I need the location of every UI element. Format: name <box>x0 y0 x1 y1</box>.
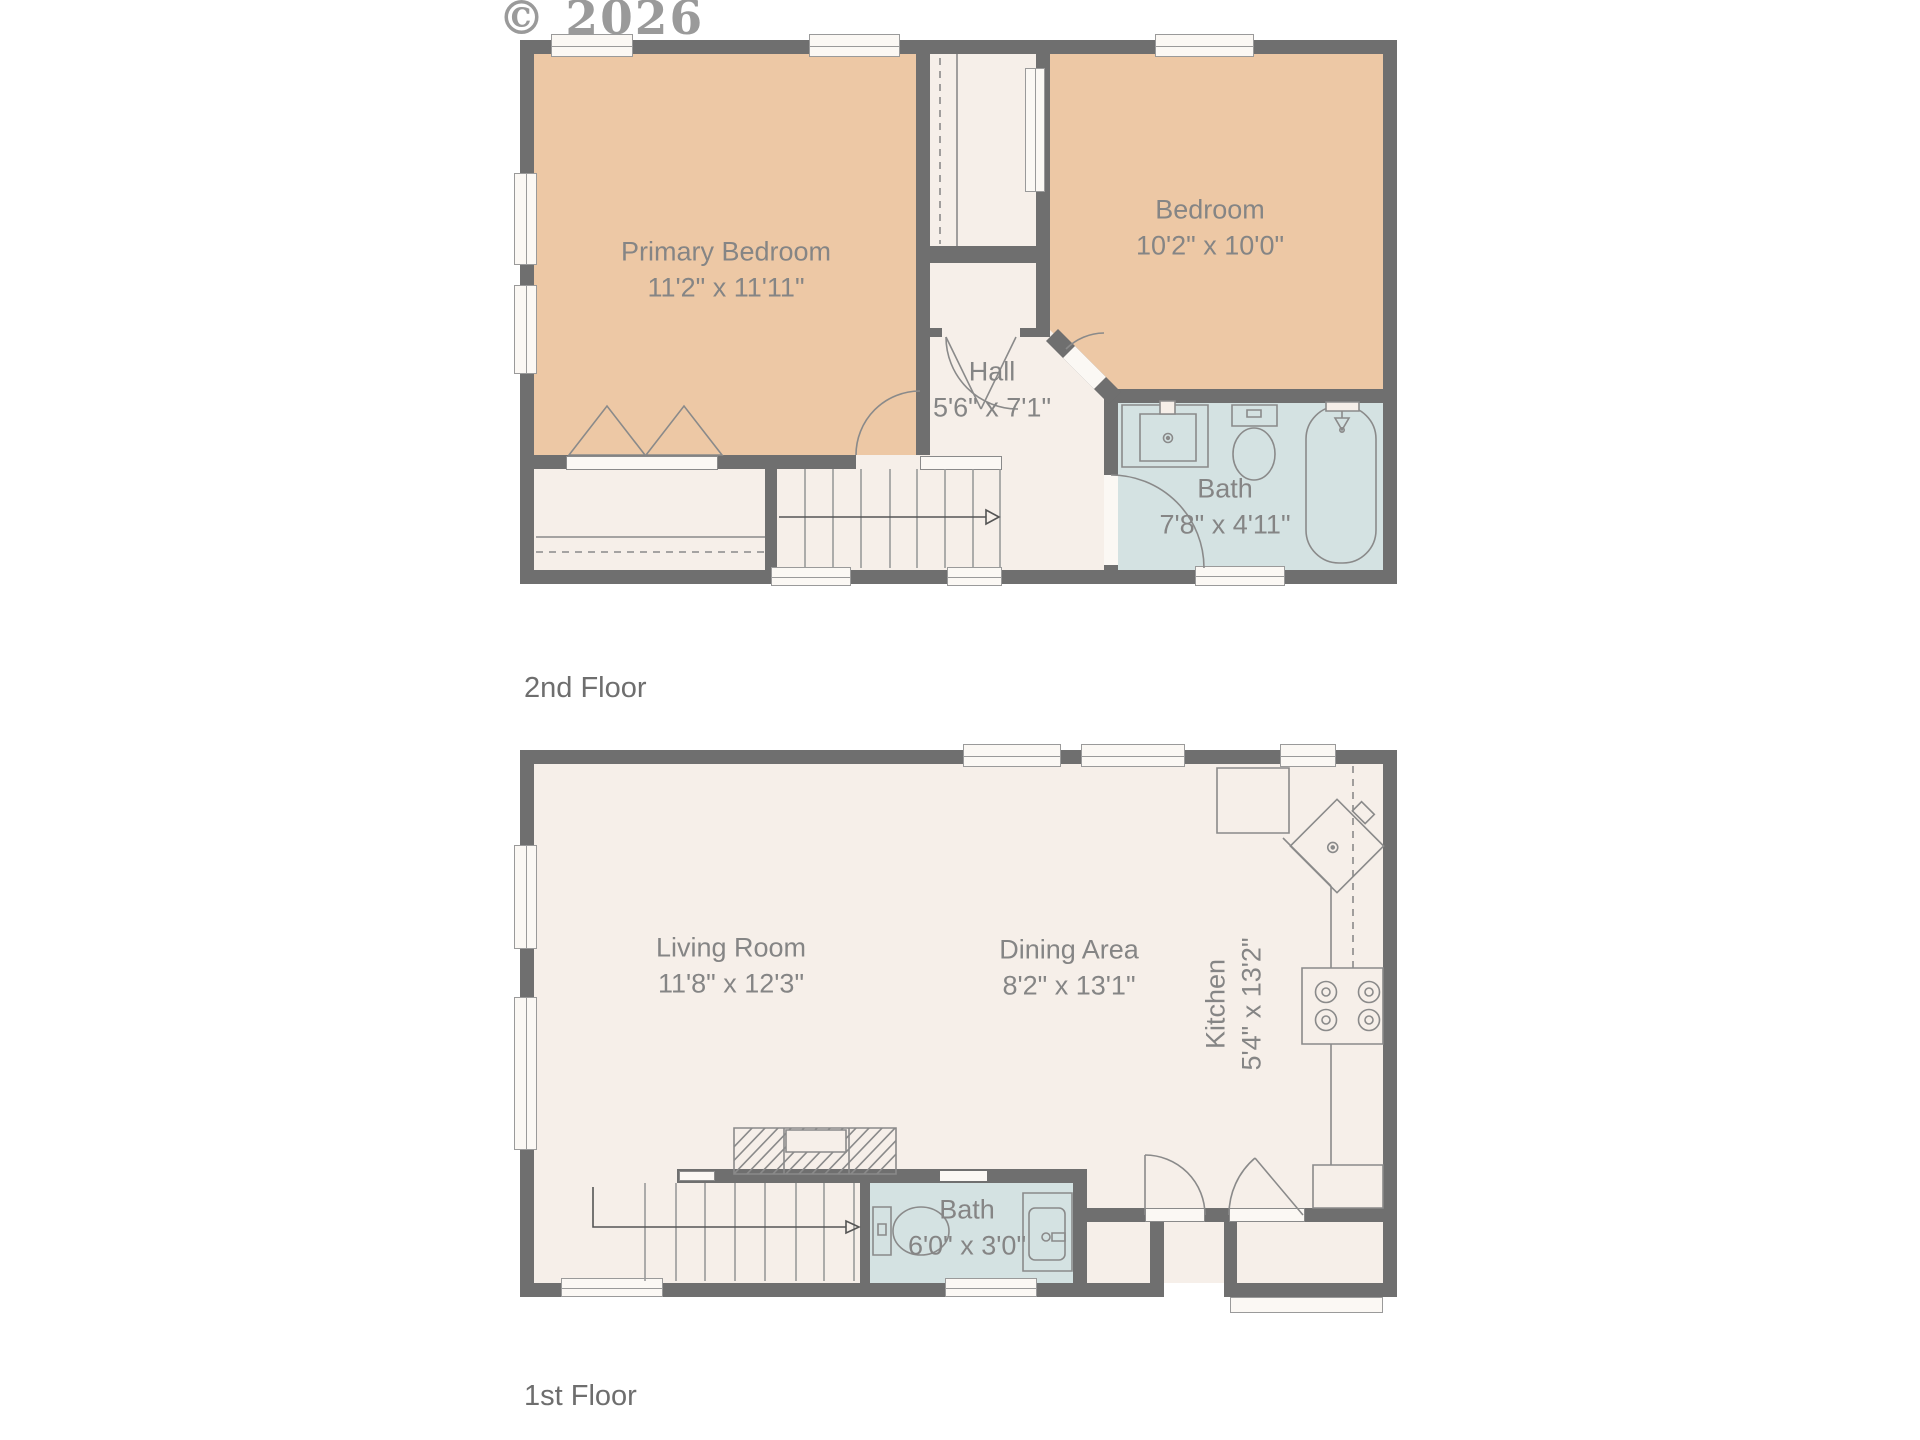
bifold-closet-doors-icon <box>569 406 722 455</box>
room-name: Living Room <box>656 930 806 966</box>
shower-icon <box>1023 1193 1072 1271</box>
floorplan-1st-floor: Living Room 11'8" x 12'3" Dining Area 8'… <box>520 750 1397 1330</box>
cooktop-icon <box>1302 968 1383 1044</box>
refrigerator-icon <box>1217 768 1289 833</box>
stairs-up-arrow-icon <box>779 510 999 524</box>
room-label-bedroom: Bedroom 10'2" x 10'0" <box>1136 192 1284 263</box>
room-dims: 6'0" x 3'0" <box>908 1228 1026 1264</box>
toilet-icon <box>1232 405 1277 480</box>
floorplan-page: © 2026 <box>0 0 1920 1440</box>
vanity-sink-icon <box>1122 401 1208 467</box>
room-name: Bath <box>908 1192 1026 1228</box>
room-name: Dining Area <box>999 932 1139 968</box>
room-label-bath-2nd: Bath 7'8" x 4'11" <box>1159 471 1290 542</box>
stairs-overhead-hatch-icon <box>706 1126 923 1176</box>
room-dims: 10'2" x 10'0" <box>1136 228 1284 264</box>
bathtub-icon <box>1306 402 1376 563</box>
floorplan-2nd-floor: Primary Bedroom 11'2" x 11'11" Bedroom 1… <box>520 40 1397 584</box>
door-arc <box>856 391 920 455</box>
corner-sink-icon <box>1290 799 1383 892</box>
room-label-dining-area: Dining Area 8'2" x 13'1" <box>999 932 1139 1003</box>
room-label-living-room: Living Room 11'8" x 12'3" <box>656 930 806 1001</box>
room-label-hall: Hall 5'6" x 7'1" <box>933 354 1051 425</box>
room-dims: 11'8" x 12'3" <box>656 966 806 1002</box>
room-name: Hall <box>933 354 1051 390</box>
room-dims: 11'2" x 11'11" <box>621 270 831 306</box>
floor-label-2nd: 2nd Floor <box>524 672 647 705</box>
room-name: Kitchen <box>1198 937 1234 1070</box>
room-name: Bedroom <box>1136 192 1284 228</box>
room-label-kitchen: Kitchen 5'4" x 13'2" <box>1198 937 1269 1070</box>
stairs-up-arrow-icon <box>593 1187 859 1233</box>
room-label-primary-bedroom: Primary Bedroom 11'2" x 11'11" <box>621 234 831 305</box>
diagonal-wall <box>1052 335 1115 398</box>
room-dims: 5'4" x 13'2" <box>1234 937 1270 1070</box>
room-name: Primary Bedroom <box>621 234 831 270</box>
room-dims: 8'2" x 13'1" <box>999 968 1139 1004</box>
room-label-bath-1st: Bath 6'0" x 3'0" <box>908 1192 1026 1263</box>
staircase-icon <box>805 469 1000 568</box>
room-dims: 7'8" x 4'11" <box>1159 507 1290 543</box>
entry-door-arcs <box>1145 1155 1303 1215</box>
room-name: Bath <box>1159 471 1290 507</box>
room-dims: 5'6" x 7'1" <box>933 390 1051 426</box>
staircase-icon <box>645 1183 854 1281</box>
floor-label-1st: 1st Floor <box>524 1380 637 1413</box>
